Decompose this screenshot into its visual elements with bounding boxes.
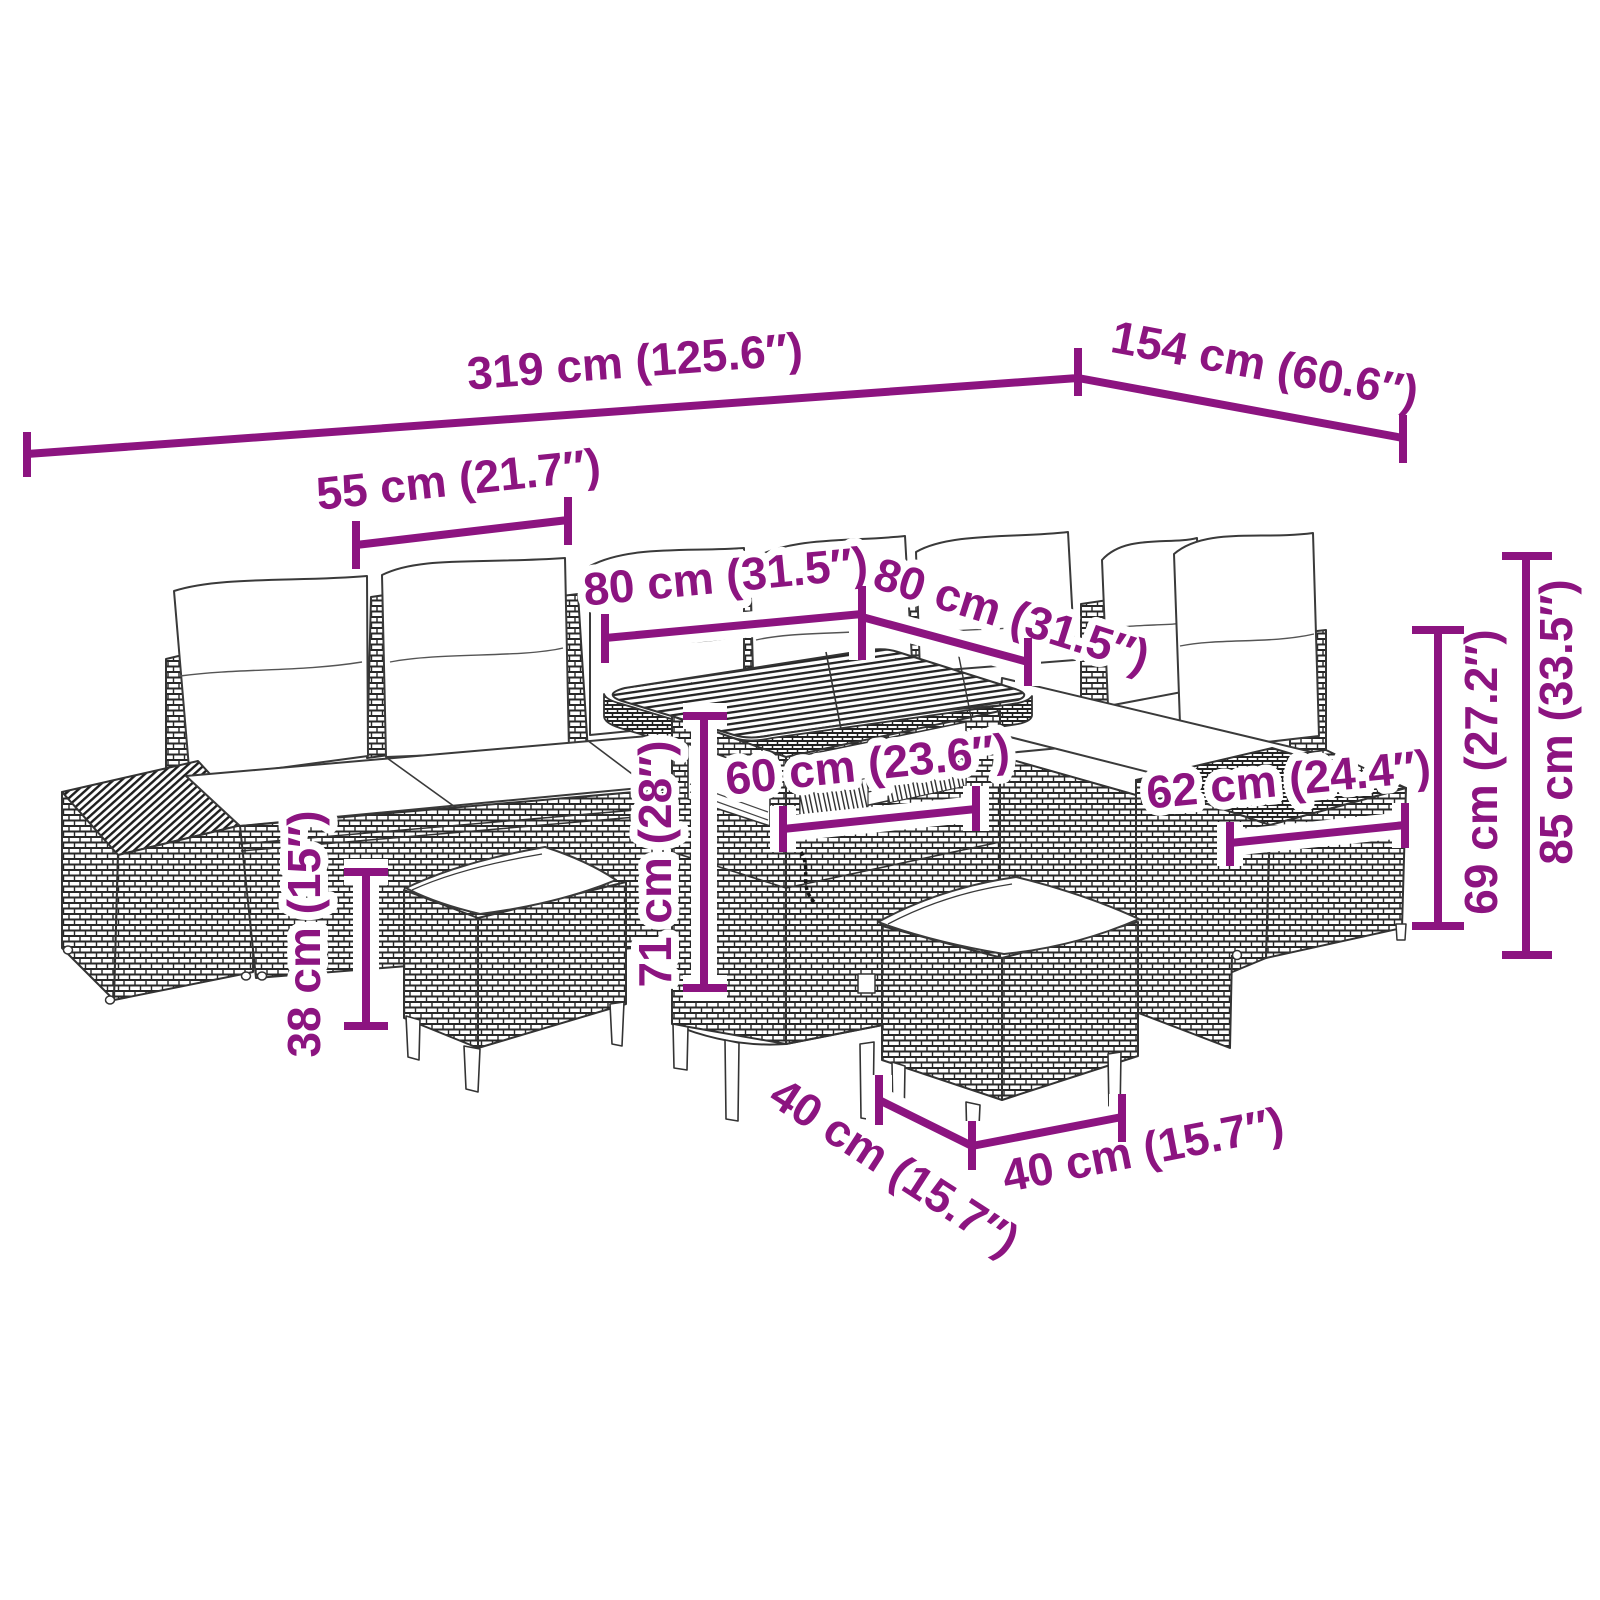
svg-text:38 cm (15″): 38 cm (15″) — [278, 810, 330, 1057]
svg-text:85 cm (33.5″): 85 cm (33.5″) — [1530, 579, 1582, 864]
svg-text:69 cm (27.2″): 69 cm (27.2″) — [1455, 629, 1507, 914]
svg-text:71 cm (28″): 71 cm (28″) — [629, 740, 681, 987]
